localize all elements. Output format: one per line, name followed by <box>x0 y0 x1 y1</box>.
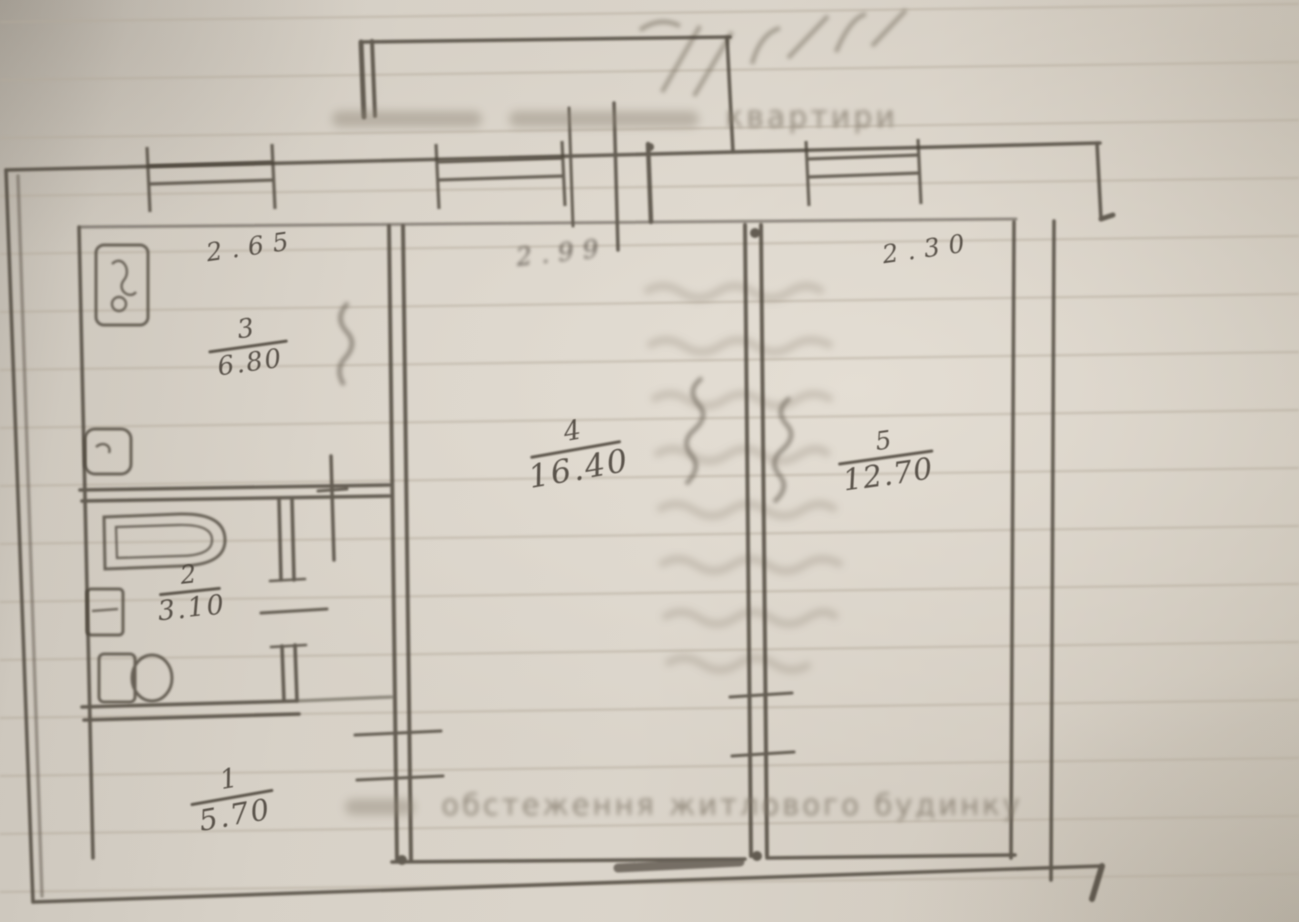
floor-plan-photo: квартири обстеження житлового будинку 2.… <box>0 0 1299 922</box>
room-label-5: 5 12.70 <box>834 422 938 498</box>
top-caption: квартири <box>332 100 898 135</box>
bottom-caption-text: обстеження житлового будинку <box>441 788 1023 822</box>
room-number: 3 <box>236 315 256 343</box>
room-number: 5 <box>874 427 893 454</box>
illegible-word-smudge <box>345 799 415 815</box>
room-number: 4 <box>562 417 584 447</box>
room-label-1: 1 5.70 <box>185 759 279 837</box>
top-right-pencil-scribble <box>640 10 906 96</box>
window-left <box>147 144 275 212</box>
fixtures <box>85 245 225 702</box>
ghost-bleedthrough-writing <box>645 286 842 670</box>
sink <box>87 589 123 635</box>
room-number: 2 <box>179 561 197 588</box>
room-label-3: 3 6.80 <box>204 311 292 382</box>
illegible-word-smudge <box>332 111 482 127</box>
windows <box>147 139 921 212</box>
bottom-caption: обстеження житлового будинку <box>345 788 1023 822</box>
room-number: 1 <box>218 765 240 795</box>
ventilation-shaft <box>96 245 148 325</box>
illegible-word-smudge <box>509 111 699 127</box>
ruled-paper-lines <box>0 4 1299 892</box>
toilet <box>99 654 172 702</box>
room-area: 3.10 <box>157 591 228 625</box>
room-label-2: 2 3.10 <box>153 559 227 626</box>
wall-box-fixture <box>85 429 131 474</box>
window-center <box>436 141 565 209</box>
top-caption-text: квартири <box>725 100 898 135</box>
